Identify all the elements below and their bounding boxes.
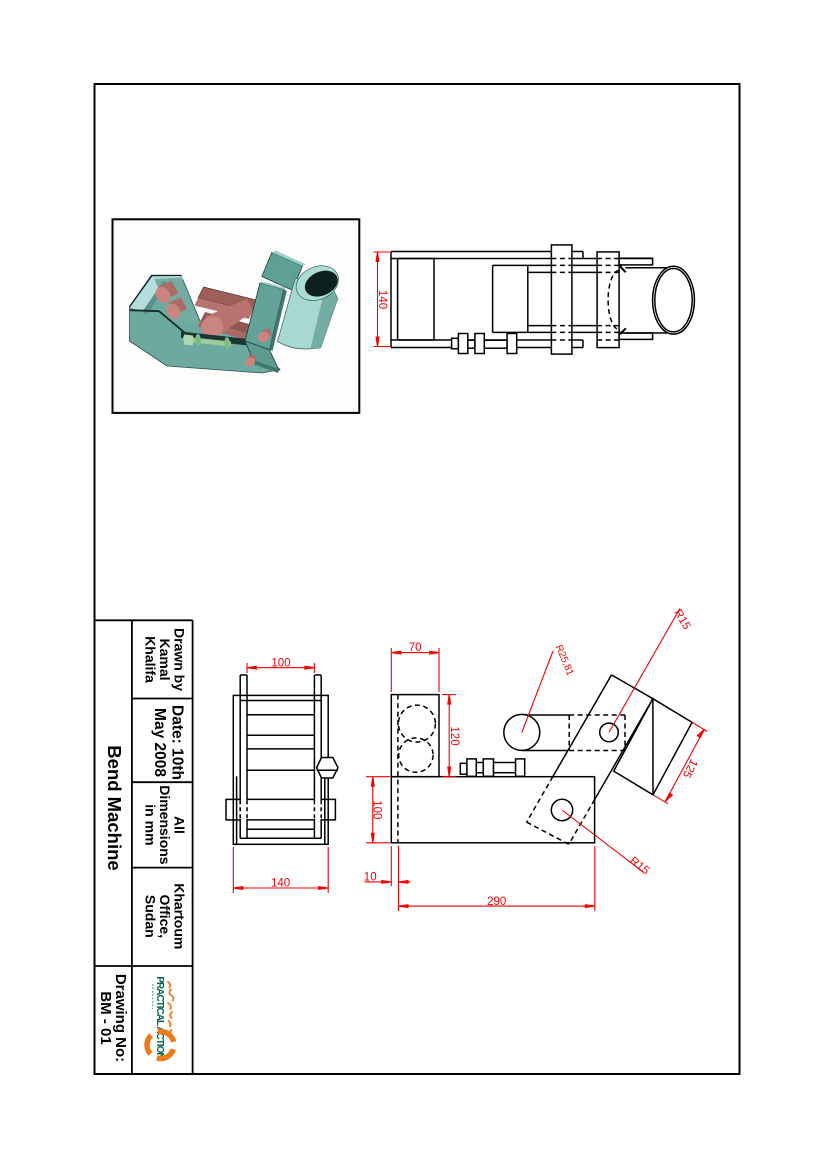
svg-text:PRACTICAL ACTION: PRACTICAL ACTION <box>154 976 165 1059</box>
svg-text:100: 100 <box>370 800 382 819</box>
svg-text:140: 140 <box>271 878 290 890</box>
svg-text:Date: 10thMay 2008: Date: 10thMay 2008 <box>151 705 186 780</box>
svg-text:120: 120 <box>448 726 460 745</box>
svg-text:Bend Machine: Bend Machine <box>104 745 125 870</box>
svg-text:140: 140 <box>376 290 388 309</box>
svg-text:290: 290 <box>487 896 506 908</box>
svg-text:100: 100 <box>271 658 290 670</box>
svg-text:70: 70 <box>409 642 422 654</box>
svg-text:10: 10 <box>364 872 377 884</box>
